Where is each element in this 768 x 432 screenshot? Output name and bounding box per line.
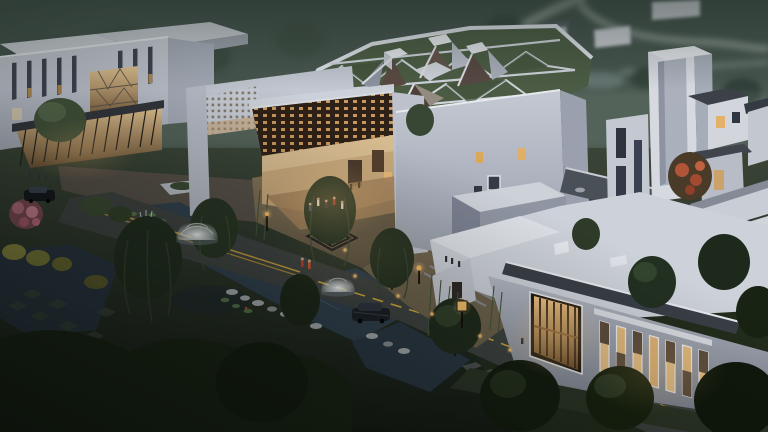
vignette-top (0, 0, 768, 90)
rendering-canvas (0, 0, 768, 432)
architectural-rendering (0, 0, 768, 432)
